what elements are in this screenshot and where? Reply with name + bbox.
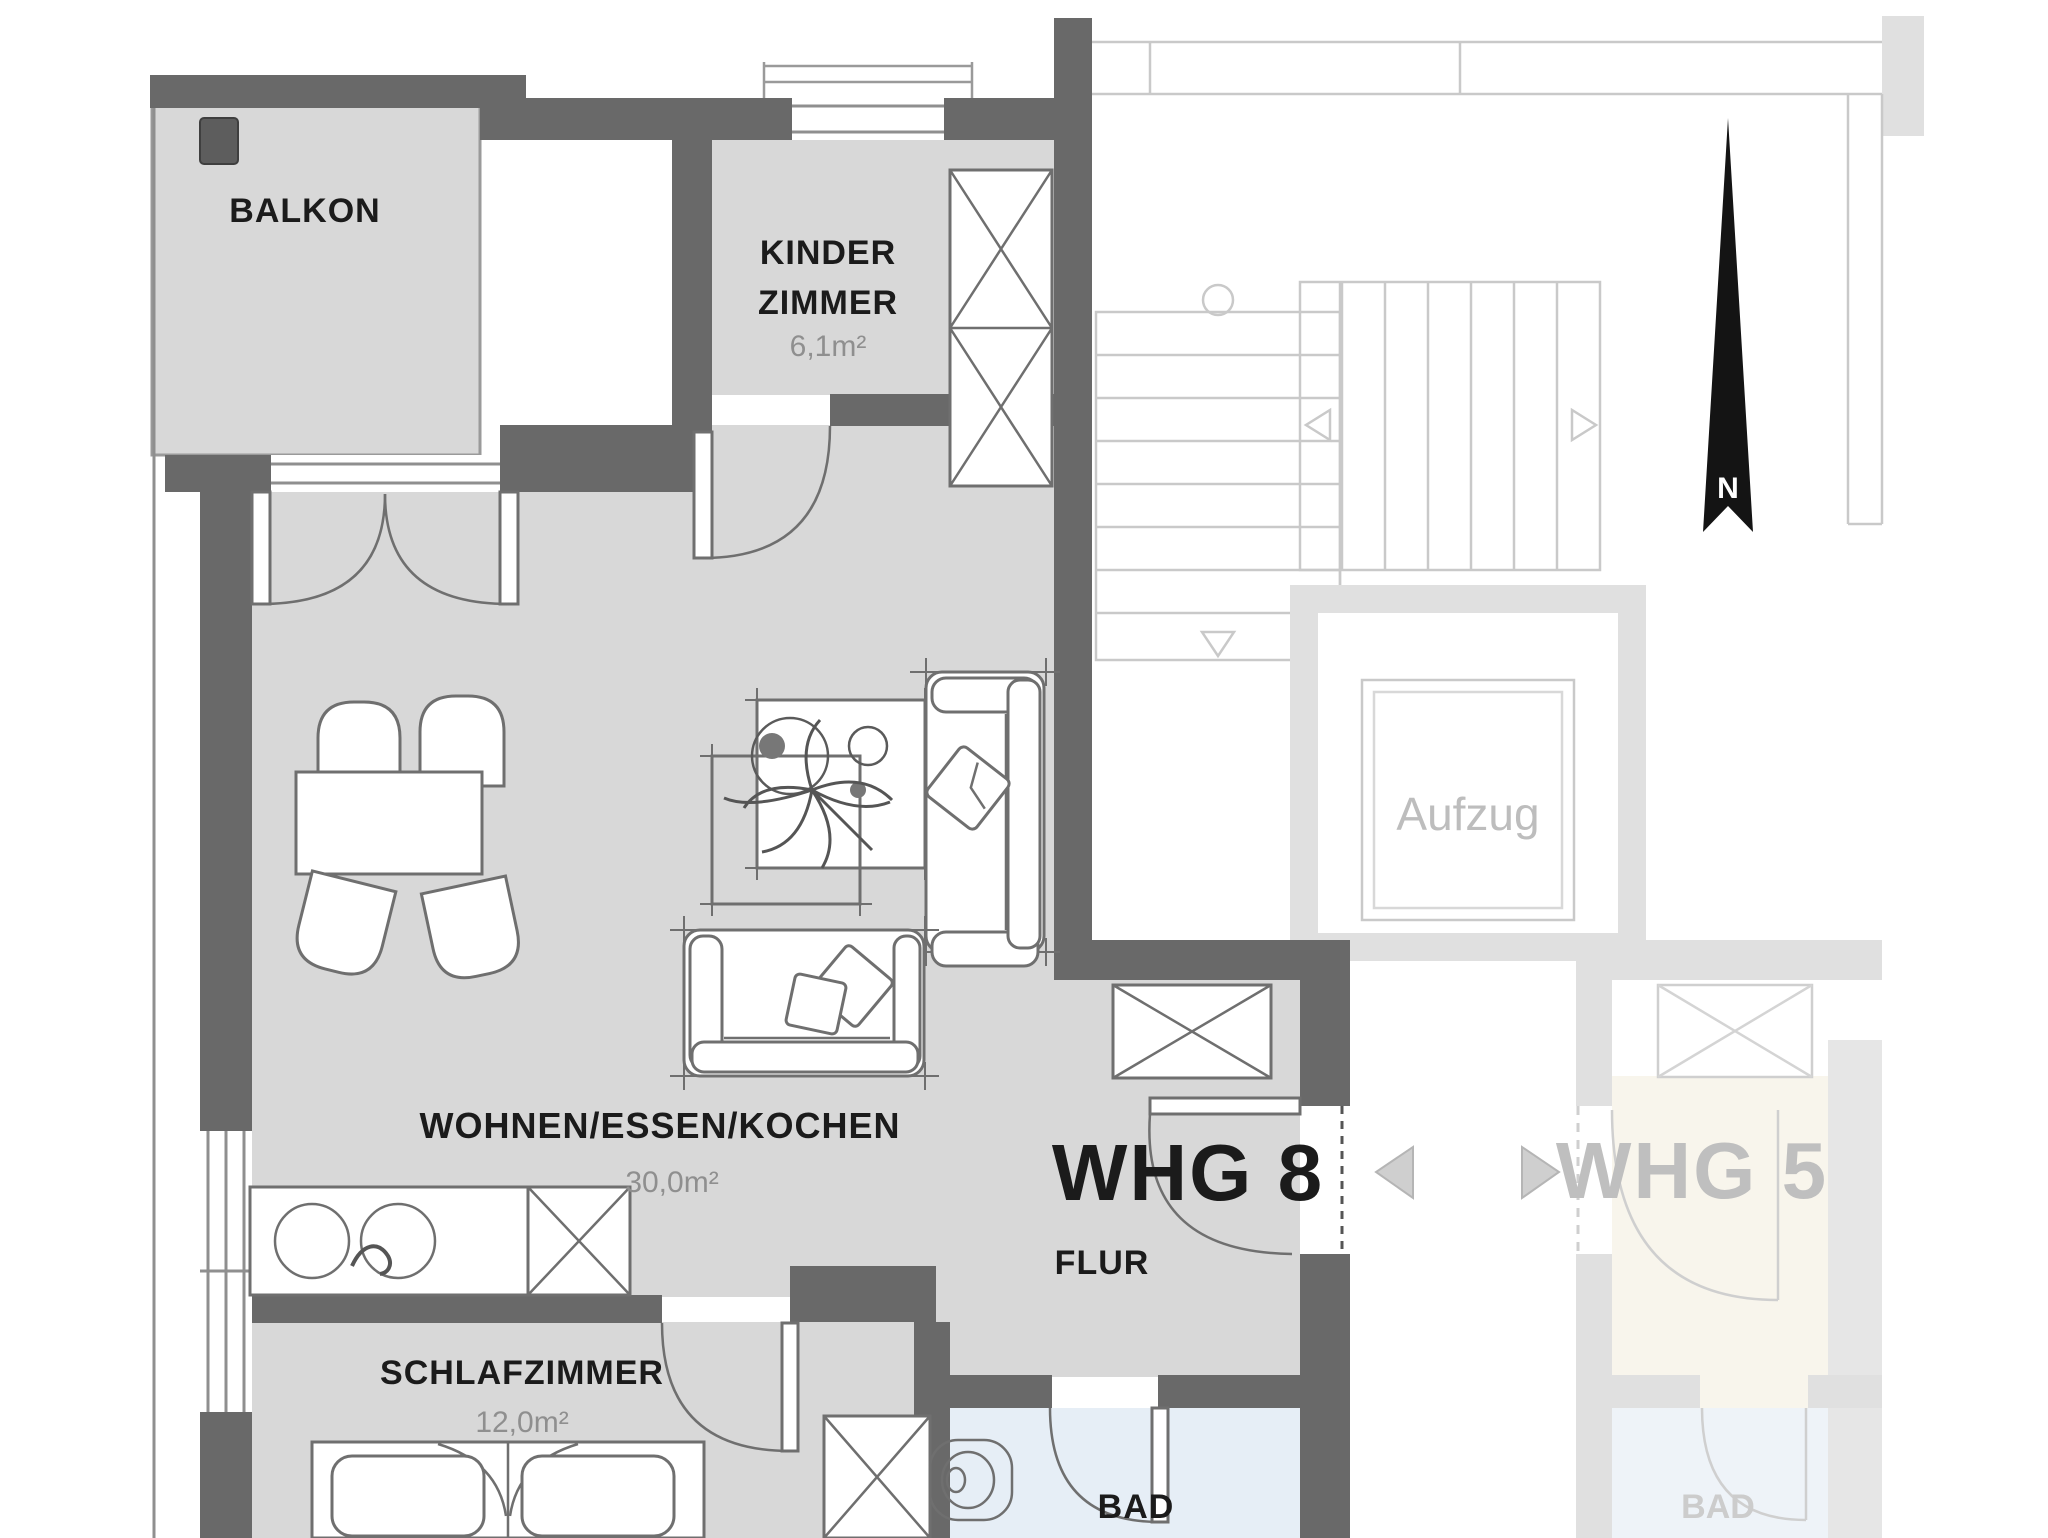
top-right-wall-band (1882, 16, 1924, 136)
left-wall-upper (200, 455, 252, 1131)
dining-table (296, 772, 482, 874)
schlafzimmer-window (200, 1131, 252, 1412)
elevator-label: Aufzug (1396, 788, 1539, 840)
kinderzimmer-label-line1: KINDER (760, 234, 896, 272)
sofa-horizontal (670, 916, 939, 1090)
neighbor-bath-label: BAD (1681, 1488, 1755, 1526)
neighbor-bath-wall-right (1808, 1375, 1882, 1408)
stair-flight-upper (1300, 282, 1600, 570)
elevator: Aufzug (1290, 585, 1646, 961)
neighbor-unit-whg5: BAD WHG 5 (1522, 940, 1882, 1538)
wohnen-area: 30,0m² (625, 1166, 718, 1199)
stair-newel-circle (1203, 285, 1233, 315)
schlafzimmer-label: SCHLAFZIMMER (380, 1354, 664, 1392)
stair-direction-right-icon (1572, 410, 1596, 440)
kitchen-counter (250, 1187, 630, 1295)
stair-direction-left-icon (1306, 410, 1330, 440)
entry-closet (1113, 985, 1271, 1078)
north-arrow-icon (1703, 118, 1753, 532)
balcony-door-leaf-left (252, 492, 270, 604)
entry-wall-upper (1300, 940, 1350, 1106)
right-facade-lines (1848, 94, 1882, 524)
kitchen-counter-top (250, 1187, 528, 1295)
kinderzimmer-wardrobe (950, 170, 1052, 486)
schlafzimmer-wardrobe (824, 1416, 930, 1538)
kinderzimmer-area: 6,1m² (790, 330, 867, 363)
north-arrow: N (1703, 118, 1753, 532)
schlafzimmer-area: 12,0m² (475, 1406, 568, 1439)
bed-pillow-right (522, 1456, 674, 1536)
kitchen-schlafzimmer-wall (240, 1295, 662, 1323)
neighbor-wall-left-upper (1576, 980, 1612, 1106)
floorplan-drawing: Aufzug N BAD WHG 5 (0, 0, 2048, 1538)
flur-schlafzimmer-wall-chunk (790, 1266, 936, 1322)
left-wall-lower (200, 1412, 252, 1538)
right-exterior-wall (1054, 18, 1092, 942)
double-bed (312, 1442, 704, 1538)
kinderzimmer-top-wall-left (480, 98, 792, 140)
kinderzimmer-window (764, 62, 972, 140)
wohnen-label: WOHNEN/ESSEN/KOCHEN (419, 1105, 900, 1146)
kinderzimmer-left-wall (672, 140, 712, 432)
neighbor-unit-label: WHG 5 (1556, 1126, 1828, 1215)
balcony-corner-post (200, 118, 238, 164)
bad-top-wall-left (948, 1375, 1052, 1408)
entry-wall-lower (1300, 1254, 1350, 1538)
bad-top-wall-right (1158, 1375, 1300, 1408)
unit-label-whg8: WHG 8 (1052, 1128, 1324, 1217)
floorplan-page: Aufzug N BAD WHG 5 (0, 0, 2048, 1538)
bad-label: BAD (1098, 1488, 1175, 1526)
balcony-top-wall (150, 75, 480, 108)
balcony-living-wall-right (500, 425, 712, 492)
neighbor-wall-right (1828, 1040, 1882, 1538)
neighbor-entry-closet (1658, 985, 1812, 1077)
sofa-horizontal-pillow-2 (785, 973, 847, 1035)
neighbor-wall-band-top (1576, 940, 1882, 980)
flur-label: FLUR (1055, 1244, 1150, 1282)
balcony-door-leaf-right (500, 492, 518, 604)
neighbor-bath-wall-left (1612, 1375, 1700, 1408)
top-facade-lines (1092, 42, 1882, 94)
neighbor-wall-left-lower (1576, 1254, 1612, 1538)
kinderzimmer-label-line2: ZIMMER (758, 284, 898, 322)
entrance-door-leaf (1150, 1098, 1300, 1114)
stair-flight-upper-risers (1342, 282, 1557, 570)
sofa-vertical (910, 658, 1060, 966)
stair-down-arrow-icon (1202, 632, 1234, 656)
neighbor-unit-arrow-icon (1522, 1147, 1559, 1198)
unit-arrow-icon (1376, 1147, 1413, 1198)
apartment-whg8: BALKON KINDER ZIMMER 6,1m² WOHNEN/ESSEN/… (150, 18, 1413, 1538)
north-arrow-label: N (1717, 472, 1739, 505)
balkon-label: BALKON (229, 192, 380, 230)
bed-pillow-left (332, 1456, 484, 1536)
